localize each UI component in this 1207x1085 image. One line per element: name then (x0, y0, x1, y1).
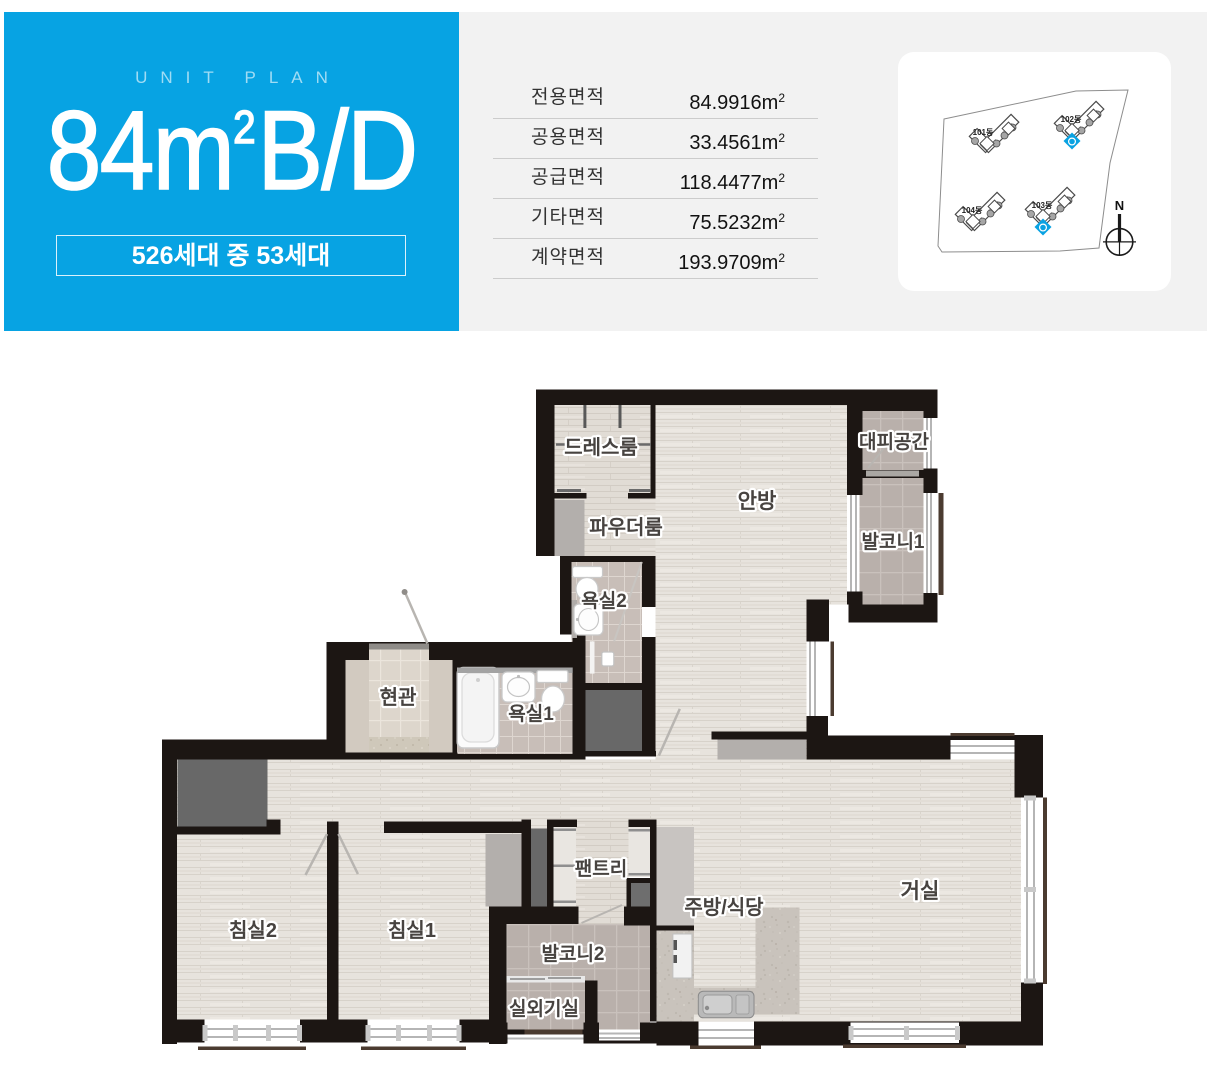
svg-text:팬트리: 팬트리 (575, 858, 627, 880)
svg-text:현관: 현관 (380, 686, 417, 709)
svg-text:침실1: 침실1 (388, 919, 436, 942)
svg-text:욕실2: 욕실2 (581, 590, 627, 612)
svg-text:대피공간: 대피공간 (859, 431, 929, 453)
svg-text:욕실1: 욕실1 (508, 703, 554, 725)
svg-text:실외기실: 실외기실 (509, 998, 579, 1020)
svg-text:발코니1: 발코니1 (861, 531, 924, 553)
svg-text:발코니2: 발코니2 (541, 943, 604, 965)
svg-text:침실2: 침실2 (229, 919, 277, 942)
svg-text:안방: 안방 (738, 490, 777, 513)
svg-text:파우더룸: 파우더룸 (589, 516, 663, 539)
svg-text:주방/식당: 주방/식당 (684, 896, 764, 919)
svg-text:거실: 거실 (901, 880, 940, 903)
svg-text:드레스룸: 드레스룸 (564, 436, 638, 459)
